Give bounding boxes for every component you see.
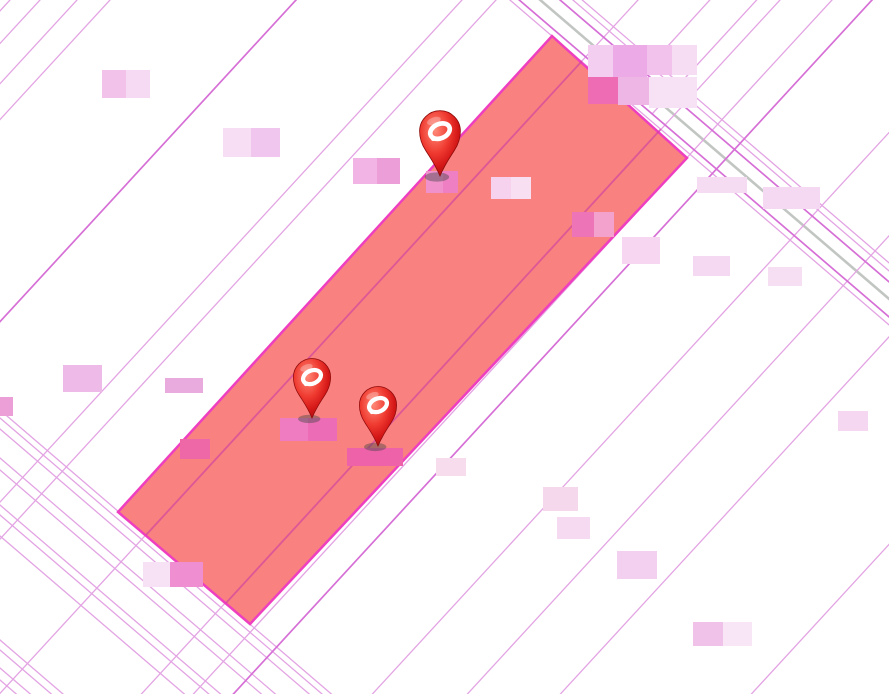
redacted-label	[647, 45, 672, 75]
redacted-label	[180, 439, 210, 459]
redacted-label	[126, 70, 150, 98]
redacted-label	[572, 212, 594, 237]
redacted-label	[353, 158, 377, 184]
redacted-label	[377, 158, 400, 184]
redacted-label	[693, 256, 730, 276]
redacted-label	[723, 622, 752, 646]
redacted-label	[613, 45, 647, 77]
pin-shadow	[425, 172, 449, 181]
redacted-label	[622, 237, 660, 264]
redacted-label	[697, 177, 747, 193]
redacted-label	[649, 77, 697, 108]
redacted-label	[511, 177, 531, 199]
pin-shadow	[298, 415, 320, 423]
redacted-label	[63, 365, 102, 392]
redacted-label	[594, 212, 614, 237]
redacted-label	[491, 177, 511, 199]
redacted-label	[693, 622, 723, 646]
redacted-label	[223, 128, 251, 157]
redacted-label	[617, 551, 657, 579]
redacted-label	[436, 458, 466, 476]
pin-shadow	[364, 443, 386, 451]
redacted-label	[543, 487, 578, 511]
redacted-label	[143, 562, 170, 587]
redacted-label	[588, 77, 618, 104]
redacted-label	[763, 187, 820, 209]
redacted-label	[557, 517, 590, 539]
redacted-label	[170, 562, 203, 587]
map-canvas	[0, 0, 889, 694]
map-viewport[interactable]	[0, 0, 889, 694]
redacted-label	[102, 70, 126, 98]
redacted-label	[838, 411, 868, 431]
redacted-label	[251, 128, 280, 157]
redacted-label	[0, 397, 13, 416]
redacted-label	[672, 45, 697, 75]
redacted-label	[618, 77, 649, 105]
redacted-label	[165, 378, 203, 393]
redacted-label	[588, 45, 613, 77]
redacted-label	[768, 267, 802, 286]
